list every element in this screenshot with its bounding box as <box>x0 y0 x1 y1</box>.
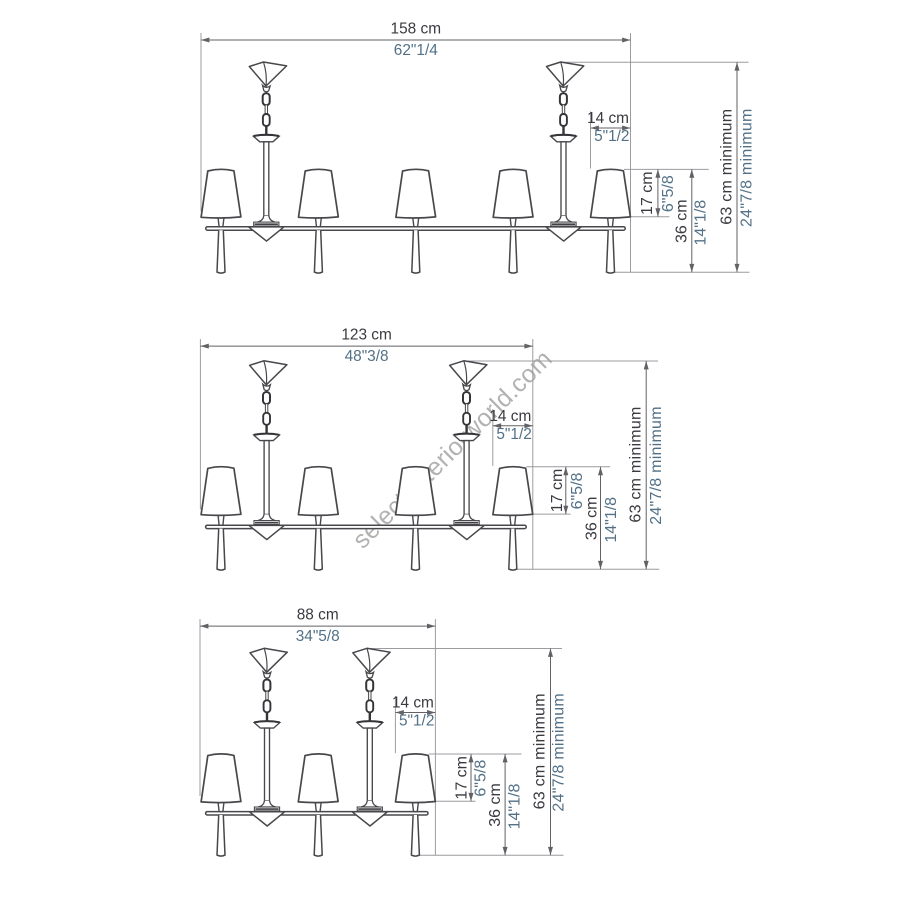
svg-text:17 cm: 17 cm <box>453 756 470 800</box>
svg-text:36 cm: 36 cm <box>487 783 504 827</box>
svg-text:62"1/4: 62"1/4 <box>394 42 438 59</box>
svg-text:63 cm minimum: 63 cm minimum <box>719 109 736 225</box>
svg-text:24"7/8 minimum: 24"7/8 minimum <box>648 406 665 525</box>
svg-text:34"5/8: 34"5/8 <box>296 628 340 645</box>
svg-text:5"1/2: 5"1/2 <box>594 128 629 145</box>
svg-text:14 cm: 14 cm <box>489 408 531 425</box>
svg-text:63 cm minimum: 63 cm minimum <box>628 406 645 522</box>
svg-text:5"1/2: 5"1/2 <box>399 713 434 730</box>
svg-text:123 cm: 123 cm <box>341 327 391 344</box>
svg-text:24"7/8 minimum: 24"7/8 minimum <box>551 693 568 812</box>
svg-text:14 cm: 14 cm <box>587 110 629 127</box>
svg-text:63 cm minimum: 63 cm minimum <box>531 693 548 809</box>
svg-text:24"7/8 minimum: 24"7/8 minimum <box>739 108 756 227</box>
svg-text:158 cm: 158 cm <box>391 21 441 38</box>
svg-text:17 cm: 17 cm <box>549 469 566 513</box>
svg-text:14"1/8: 14"1/8 <box>506 784 523 830</box>
svg-text:48"3/8: 48"3/8 <box>345 348 389 365</box>
svg-text:36 cm: 36 cm <box>584 497 601 541</box>
svg-text:5"1/2: 5"1/2 <box>496 426 531 443</box>
svg-text:14"1/8: 14"1/8 <box>692 200 709 246</box>
svg-text:17 cm: 17 cm <box>639 171 656 215</box>
svg-text:36 cm: 36 cm <box>673 199 690 243</box>
svg-text:14"1/8: 14"1/8 <box>603 497 620 543</box>
svg-text:88 cm: 88 cm <box>297 607 339 624</box>
svg-text:14 cm: 14 cm <box>392 695 434 712</box>
